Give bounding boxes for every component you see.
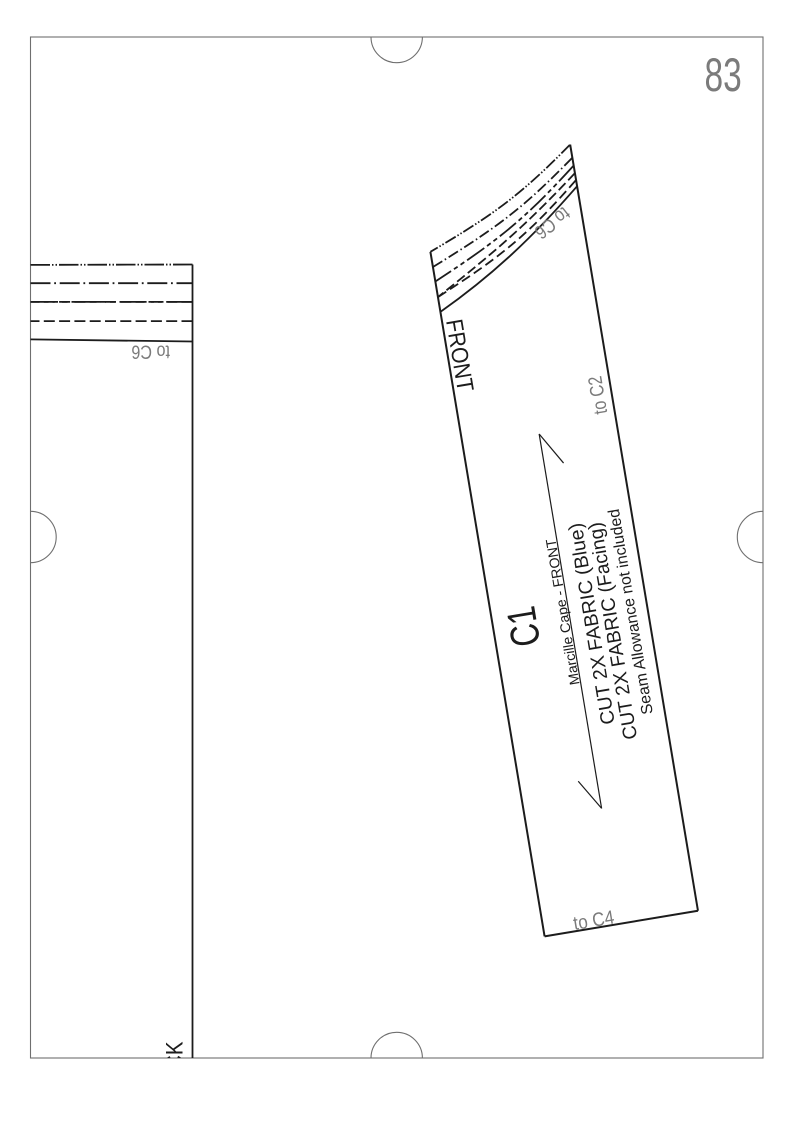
- svg-text:to C6: to C6: [131, 341, 170, 363]
- svg-text:83: 83: [705, 49, 742, 102]
- svg-text:C1: C1: [497, 603, 549, 650]
